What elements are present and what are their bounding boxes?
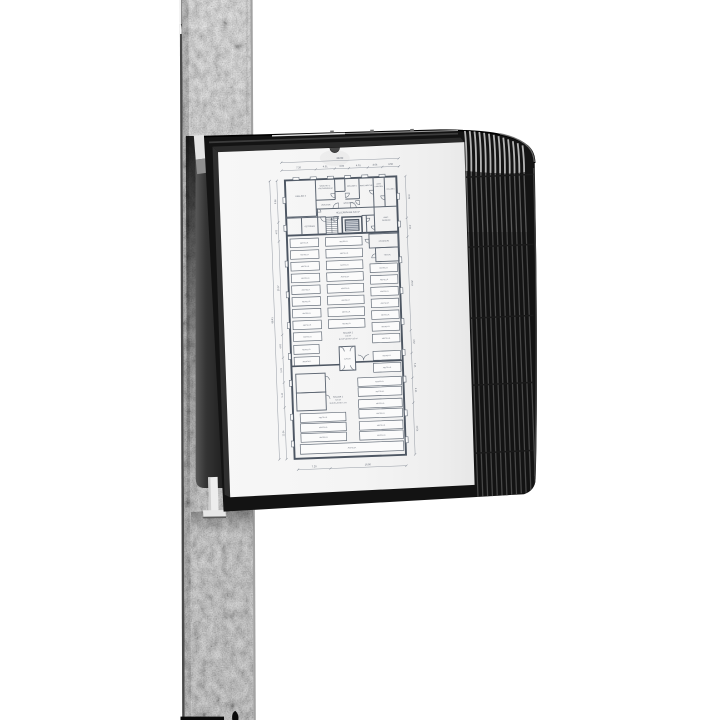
svg-text:11.04: 11.04 [283,430,285,436]
svg-text:16.50: 16.50 [365,463,372,466]
svg-text:KELLER 1: KELLER 1 [333,396,344,398]
svg-text:KELLER 5: KELLER 5 [347,185,357,187]
svg-text:TROCKENRAUM: TROCKENRAUM [318,187,333,191]
svg-text:4.01: 4.01 [408,225,410,230]
svg-text:GELBRAUM: GELBRAUM [379,239,390,242]
svg-text:FAHRRAD: FAHRRAD [382,219,391,222]
svg-text:5.21: 5.21 [281,367,283,372]
svg-text:4.62: 4.62 [280,343,282,348]
svg-text:GETRÄNKE: GETRÄNKE [305,225,316,228]
svg-text:3.50: 3.50 [388,163,394,166]
svg-text:28.00: 28.00 [336,156,343,160]
svg-text:ABST.: ABST. [383,216,389,219]
svg-text:KINDERW.: KINDERW. [375,186,384,188]
svg-text:WASCHKÜCHE: WASCHKÜCHE [360,184,374,187]
svg-text:WERKSTATT: WERKSTATT [343,201,355,204]
svg-text:11.04: 11.04 [415,426,417,432]
svg-text:4.62: 4.62 [412,339,414,344]
svg-text:20.07: 20.07 [278,285,280,292]
svg-text:KELLER 2: KELLER 2 [343,332,354,334]
svg-text:7.26: 7.26 [296,166,302,169]
svg-text:68.41: 68.41 [271,317,274,324]
svg-text:3.04: 3.04 [373,163,379,166]
svg-text:25.07: 25.07 [410,280,412,287]
svg-text:5.21: 5.21 [413,363,415,368]
svg-text:4.01: 4.01 [323,165,329,168]
svg-text:3.00: 3.00 [339,165,345,168]
svg-text:4.01: 4.01 [356,164,362,167]
svg-text:5.41: 5.41 [414,388,416,393]
svg-text:8.96: 8.96 [407,195,409,200]
svg-text:KELLER 6: KELLER 6 [387,188,395,190]
svg-text:5.41: 5.41 [282,392,284,397]
svg-text:KELLER 3: KELLER 3 [295,196,306,198]
svg-text:TECH.R.: TECH.R. [384,254,392,256]
svg-text:570 m²: 570 m² [335,398,341,401]
svg-text:100 m²: 100 m² [345,334,351,337]
svg-text:UMKLEIDE: UMKLEIDE [321,204,331,206]
svg-text:7.20: 7.20 [312,465,318,468]
svg-text:4.01: 4.01 [276,229,278,234]
svg-text:8.96: 8.96 [275,199,277,204]
